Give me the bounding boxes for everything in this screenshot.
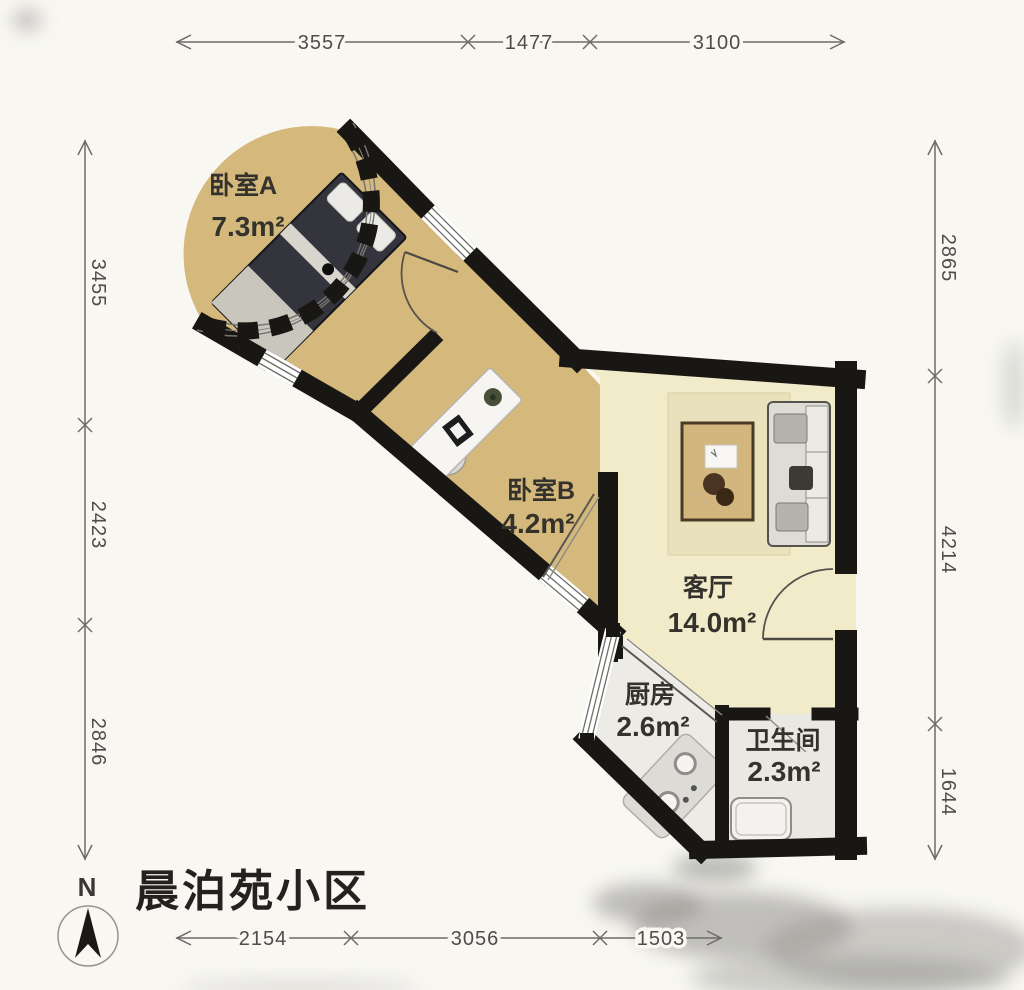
dimension-top-labels: 3557 1477 3100 [298,32,742,54]
dim-top-2: 1477 [505,32,554,54]
dimension-left-labels: 3455 2423 2846 [87,259,109,767]
north-compass: N [58,872,118,966]
floor-plan-svg: 卧室A 7.3m² 卧室B 4.2m² 客厅 14.0m² 厨房 2.6m² 卫… [0,0,1024,990]
bedroom-b-area: 4.2m² [501,508,574,539]
living-room-name: 客厅 [683,573,733,602]
north-label: N [78,872,97,902]
dimension-bottom-labels: 2154 3056 1503 [239,928,686,950]
bedroom-a-name: 卧室A [209,171,277,200]
bedroom-a-area: 7.3m² [211,211,284,242]
bathtub [731,798,791,840]
bathroom-area: 2.3m² [747,756,820,787]
bedroom-b-name: 卧室B [507,476,575,505]
dim-left-1: 3455 [87,259,109,308]
dim-bottom-3: 1503 [637,928,686,950]
dim-bottom-1: 2154 [239,928,288,950]
dim-bottom-2: 3056 [451,928,500,950]
dim-right-3: 1644 [937,768,959,817]
kitchen-area: 2.6m² [616,711,689,742]
north-arrow-icon [75,908,101,958]
coffee-table [682,423,753,520]
dim-left-2: 2423 [87,501,109,550]
living-room-area: 14.0m² [668,607,757,638]
page-title: 晨泊苑小区 [135,867,370,916]
bathroom-name: 卫生间 [745,727,820,755]
dim-top-3: 3100 [693,32,742,54]
sofa [768,402,830,546]
dim-right-1: 2865 [937,234,959,283]
kitchen-name: 厨房 [625,680,675,709]
dim-right-2: 4214 [937,526,959,575]
dim-left-3: 2846 [87,718,109,767]
dim-top-1: 3557 [298,32,347,54]
floor-plan-page: 卧室A 7.3m² 卧室B 4.2m² 客厅 14.0m² 厨房 2.6m² 卫… [0,0,1024,990]
